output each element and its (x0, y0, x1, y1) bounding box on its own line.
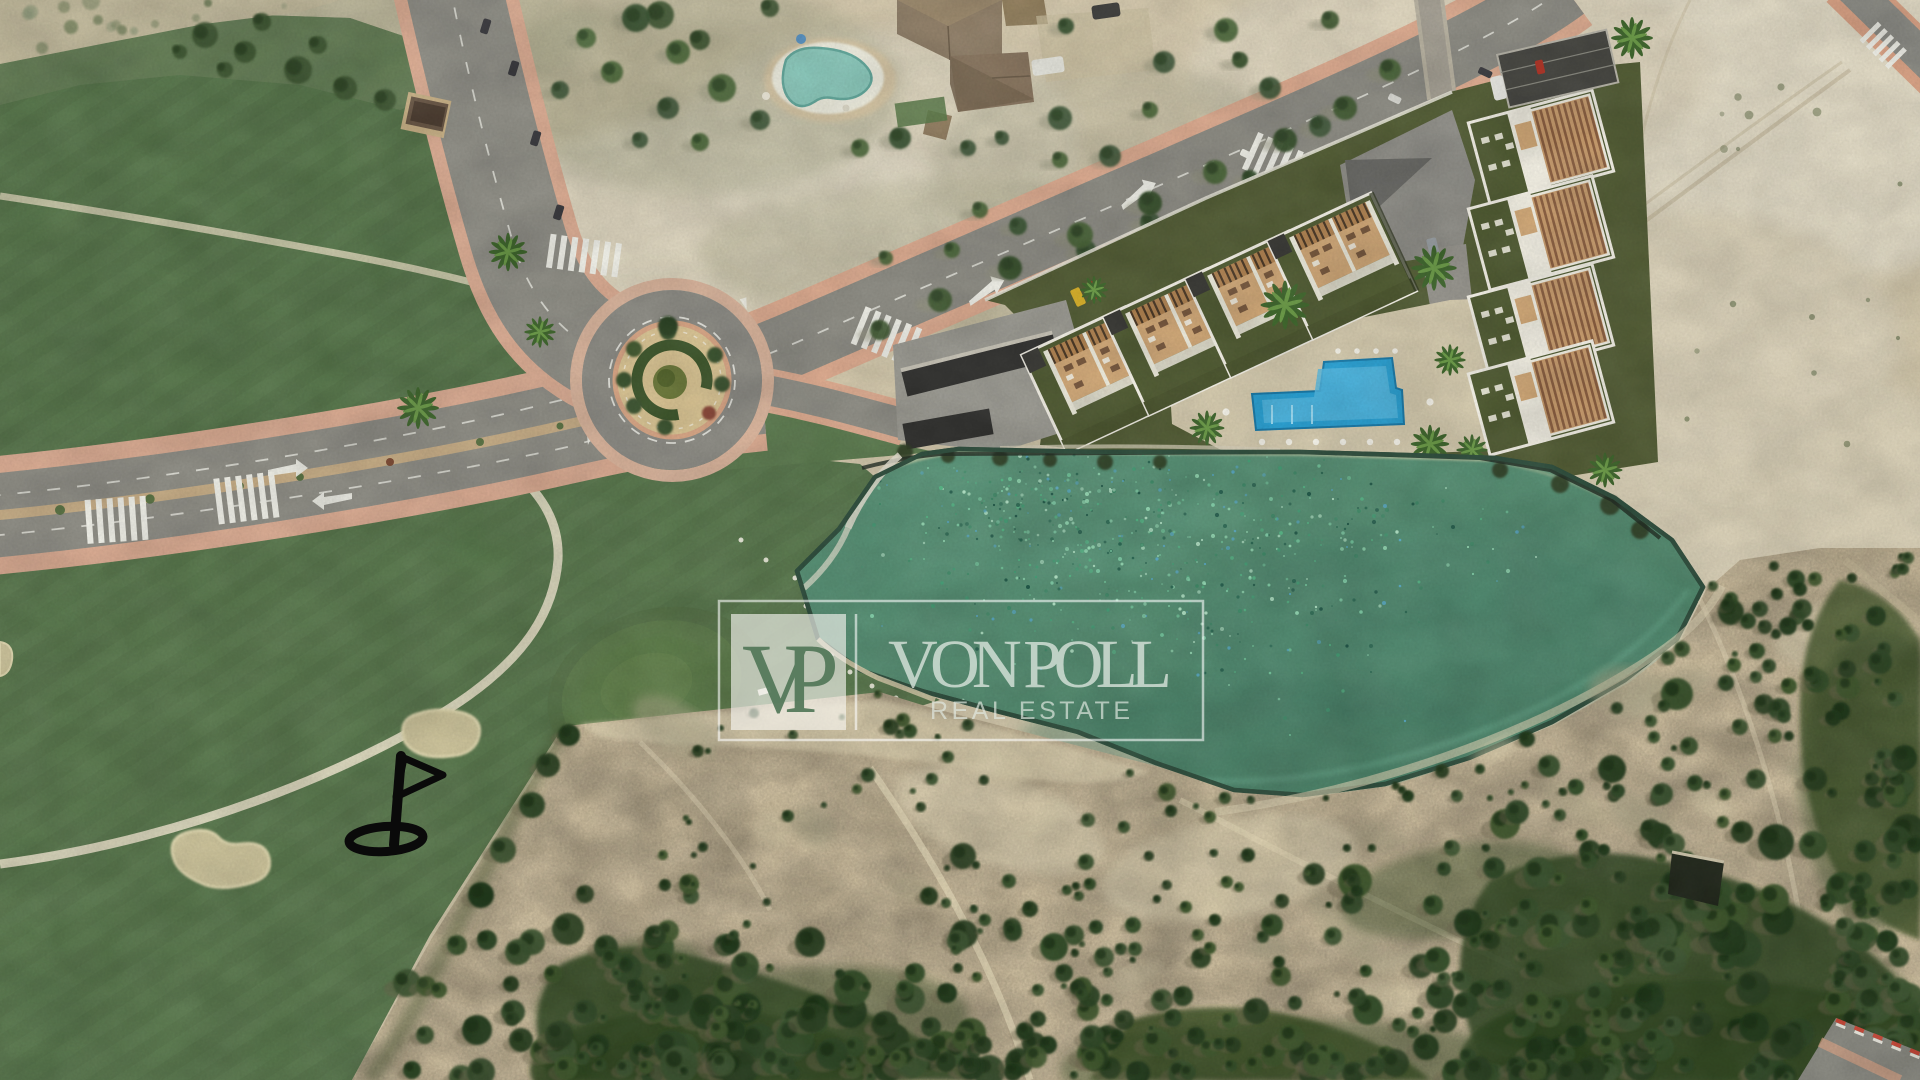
svg-text:VP: VP (742, 623, 839, 734)
svg-text:REAL ESTATE: REAL ESTATE (930, 697, 1130, 725)
svg-text:VON POLL: VON POLL (888, 626, 1172, 702)
